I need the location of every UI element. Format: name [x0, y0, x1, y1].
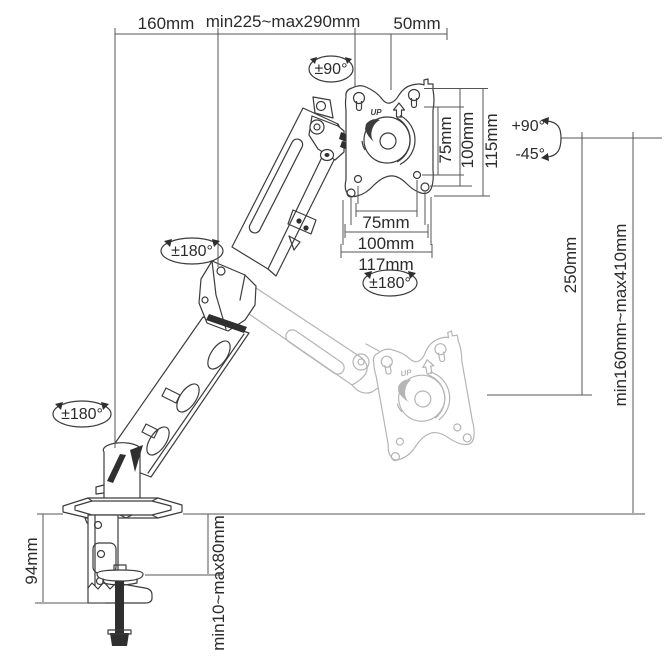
dim-reach-range: min225~max290mm	[206, 12, 361, 31]
dim-arm-rise: 250mm	[561, 237, 580, 294]
dim-vesa-v-75: 75mm	[436, 116, 455, 163]
elbow-joint	[199, 261, 256, 333]
dim-height-range: min160mm~max410mm	[611, 224, 630, 407]
tilt-down-label: -45°	[515, 146, 545, 163]
dim-vesa-h-75: 75mm	[362, 213, 409, 232]
plate-rotation-label: ±180°	[369, 275, 411, 292]
dim-head-depth: 50mm	[393, 14, 440, 33]
dim-plate-height: 115mm	[482, 113, 501, 168]
dim-top-offset: 160mm	[138, 14, 195, 33]
desk-base-plate	[63, 498, 182, 523]
monitor-arm-diagram: UP	[0, 0, 666, 666]
dim-vesa-h-100: 100mm	[358, 234, 415, 253]
head-swivel-label: ±90°	[315, 61, 348, 78]
dim-clamp-height: 94mm	[22, 537, 41, 584]
dim-vesa-v-100: 100mm	[458, 112, 477, 169]
vesa-plate	[345, 79, 434, 197]
elbow-rotation-label: ±180°	[171, 243, 213, 260]
desk-clamp	[88, 515, 152, 646]
dim-plate-width: 117mm	[358, 255, 413, 274]
riser-column	[96, 443, 143, 502]
dim-desk-thickness: min10~max80mm	[209, 515, 228, 651]
tilt-up-label: +90°	[511, 118, 545, 135]
technical-drawing-canvas: UP	[0, 0, 666, 666]
ghost-vesa-plate	[370, 330, 478, 462]
ghost-arm-lowered-position	[236, 282, 478, 462]
base-rotation-label: ±180°	[61, 406, 103, 423]
